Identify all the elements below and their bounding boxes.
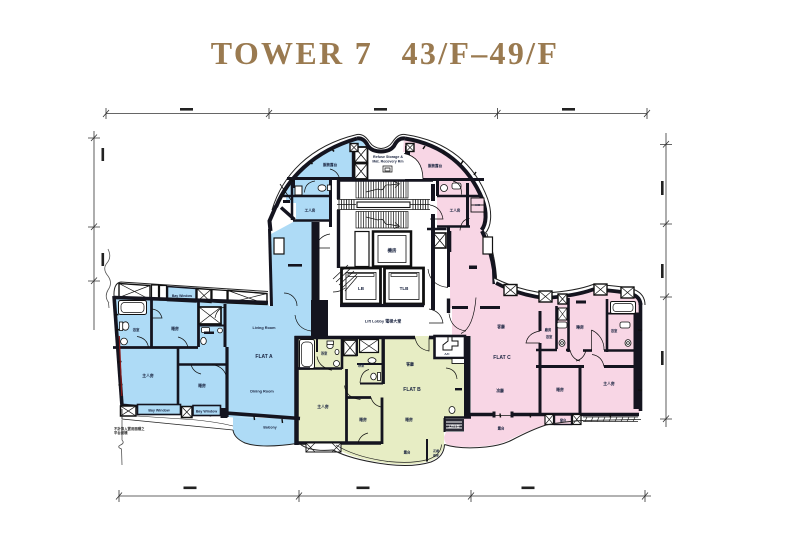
svg-text:Living Room: Living Room: [253, 326, 277, 330]
svg-text:浴室: 浴室: [321, 351, 328, 356]
svg-text:Dining Room: Dining Room: [250, 390, 274, 394]
svg-text:平台面積: 平台面積: [114, 430, 128, 435]
svg-text:Mat. Recovery Rm: Mat. Recovery Rm: [372, 160, 403, 164]
svg-text:睡房: 睡房: [171, 326, 179, 331]
svg-text:主人房: 主人房: [603, 381, 615, 386]
svg-text:FLAT C: FLAT C: [493, 355, 511, 361]
svg-text:主人房: 主人房: [317, 404, 329, 409]
svg-text:浴室: 浴室: [611, 328, 618, 333]
svg-text:Bay Window: Bay Window: [196, 410, 218, 414]
svg-text:睡房: 睡房: [556, 387, 564, 392]
svg-text:服務露台: 服務露台: [323, 162, 338, 167]
svg-text:FLAT B: FLAT B: [403, 387, 421, 393]
svg-text:Refuse Storage &: Refuse Storage &: [373, 155, 403, 159]
svg-text:工人房: 工人房: [305, 208, 316, 213]
svg-text:浴室: 浴室: [358, 363, 365, 368]
svg-text:機房: 機房: [388, 247, 397, 254]
svg-text:廠房: 廠房: [545, 327, 552, 332]
svg-text:露台: 露台: [404, 450, 411, 455]
svg-text:Bay Window: Bay Window: [172, 294, 192, 298]
svg-text:TOWER 7 43/F–49/F: TOWER 7 43/F–49/F: [211, 35, 559, 71]
svg-text:花槽: 花槽: [433, 448, 439, 453]
svg-text:浴室: 浴室: [133, 327, 140, 332]
svg-text:Lift Lobby 電梯大堂: Lift Lobby 電梯大堂: [365, 318, 401, 324]
svg-text:主人房: 主人房: [142, 373, 154, 378]
svg-text:工人房: 工人房: [450, 208, 461, 213]
svg-text:A/C: A/C: [444, 352, 450, 356]
svg-text:Balcony: Balcony: [263, 426, 276, 430]
svg-text:TLB: TLB: [400, 286, 409, 291]
svg-text:露台: 露台: [498, 426, 505, 431]
svg-text:LB: LB: [358, 286, 365, 291]
svg-text:服務露台: 服務露台: [428, 163, 443, 168]
svg-text:飡廳: 飡廳: [496, 388, 504, 393]
svg-text:睡房: 睡房: [198, 383, 206, 388]
svg-text:客廳: 客廳: [405, 362, 414, 367]
svg-text:Bay Window: Bay Window: [148, 409, 170, 413]
svg-text:工作平台: 工作平台: [448, 424, 459, 428]
svg-text:睡房: 睡房: [405, 417, 413, 422]
svg-text:A/C: A/C: [475, 203, 481, 207]
svg-text:客廳: 客廳: [496, 324, 505, 329]
svg-text:浴室: 浴室: [546, 334, 553, 339]
svg-text:FLAT A: FLAT A: [255, 354, 273, 360]
svg-text:睡房: 睡房: [359, 417, 367, 422]
svg-text:睡房: 睡房: [576, 325, 584, 330]
